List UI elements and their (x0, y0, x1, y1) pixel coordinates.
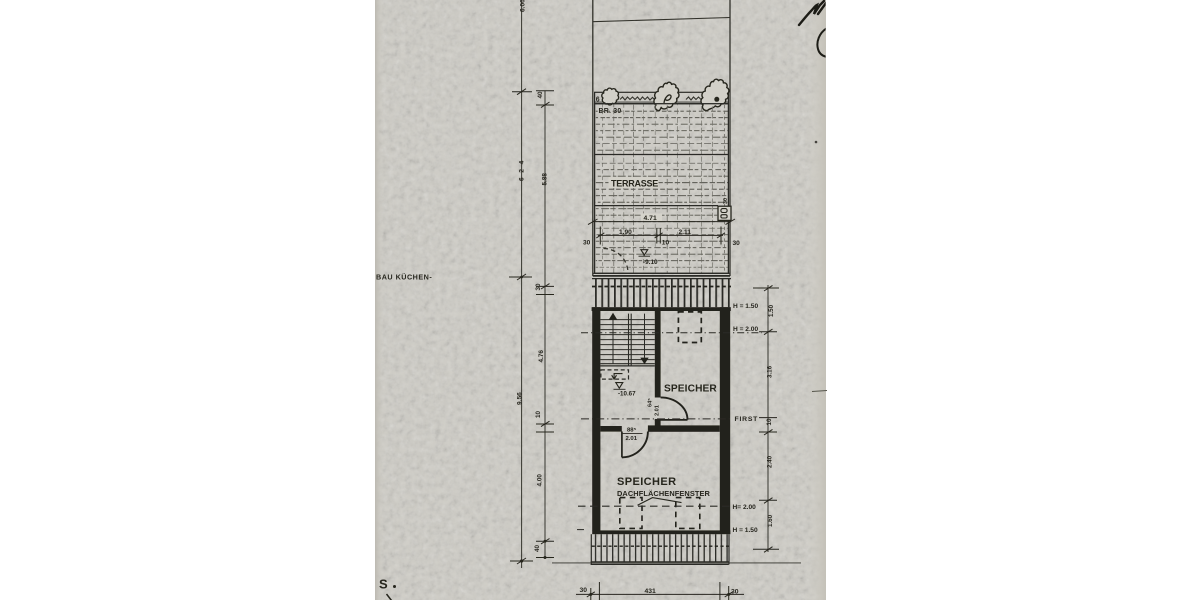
svg-text:4.76: 4.76 (538, 350, 545, 363)
svg-text:SPEICHER: SPEICHER (664, 384, 717, 395)
svg-text:S: S (379, 577, 388, 592)
svg-text:DACHFLÄCHENFENSTER: DACHFLÄCHENFENSTER (617, 489, 711, 498)
svg-text:6 2 4: 6 2 4 (519, 159, 526, 181)
svg-text:10: 10 (662, 239, 670, 246)
svg-text:1.90: 1.90 (619, 229, 632, 236)
svg-text:2.01: 2.01 (626, 436, 638, 442)
svg-text:2.40: 2.40 (767, 455, 774, 468)
svg-text:40: 40 (534, 544, 541, 552)
svg-text:1.60: 1.60 (767, 514, 774, 527)
svg-text:30: 30 (580, 587, 588, 594)
svg-text:4.00: 4.00 (537, 474, 544, 487)
svg-text:10: 10 (535, 410, 542, 418)
svg-text:H = 2.00: H = 2.00 (733, 326, 758, 333)
svg-text:1.50: 1.50 (768, 304, 775, 317)
svg-text:BAU KÜCHEN-: BAU KÜCHEN- (376, 273, 432, 282)
svg-text:-10.67: -10.67 (618, 390, 636, 397)
svg-text:H = 1.50: H = 1.50 (733, 303, 758, 310)
svg-text:3.16: 3.16 (767, 365, 774, 378)
svg-text:-9.10: -9.10 (643, 259, 658, 266)
svg-text:FIRST: FIRST (735, 416, 759, 423)
svg-text:88⁵: 88⁵ (627, 428, 637, 434)
svg-text:BR. 30: BR. 30 (599, 108, 622, 115)
svg-text:5.88: 5.88 (542, 173, 549, 186)
svg-text:H= 2.00: H= 2.00 (733, 504, 757, 511)
svg-text:2.01: 2.01 (655, 405, 661, 416)
svg-text:6.00: 6.00 (520, 0, 527, 12)
svg-text:30: 30 (733, 240, 741, 247)
svg-text:30: 30 (723, 198, 729, 204)
svg-text:SPEICHER: SPEICHER (617, 476, 676, 488)
svg-text:30: 30 (535, 283, 542, 291)
svg-text:64⁵: 64⁵ (648, 398, 654, 407)
svg-text:H = 1.50: H = 1.50 (733, 527, 758, 534)
svg-text:9.56: 9.56 (517, 392, 524, 405)
svg-text:30: 30 (731, 588, 739, 595)
svg-text:6: 6 (596, 97, 600, 104)
svg-text:2.11: 2.11 (679, 229, 692, 236)
svg-text:40: 40 (537, 91, 544, 99)
svg-text:4.71: 4.71 (644, 215, 657, 222)
svg-text:TERRASSE: TERRASSE (611, 178, 658, 188)
svg-text:30: 30 (583, 239, 591, 246)
svg-text:10: 10 (766, 418, 773, 425)
svg-text:431: 431 (645, 588, 657, 595)
